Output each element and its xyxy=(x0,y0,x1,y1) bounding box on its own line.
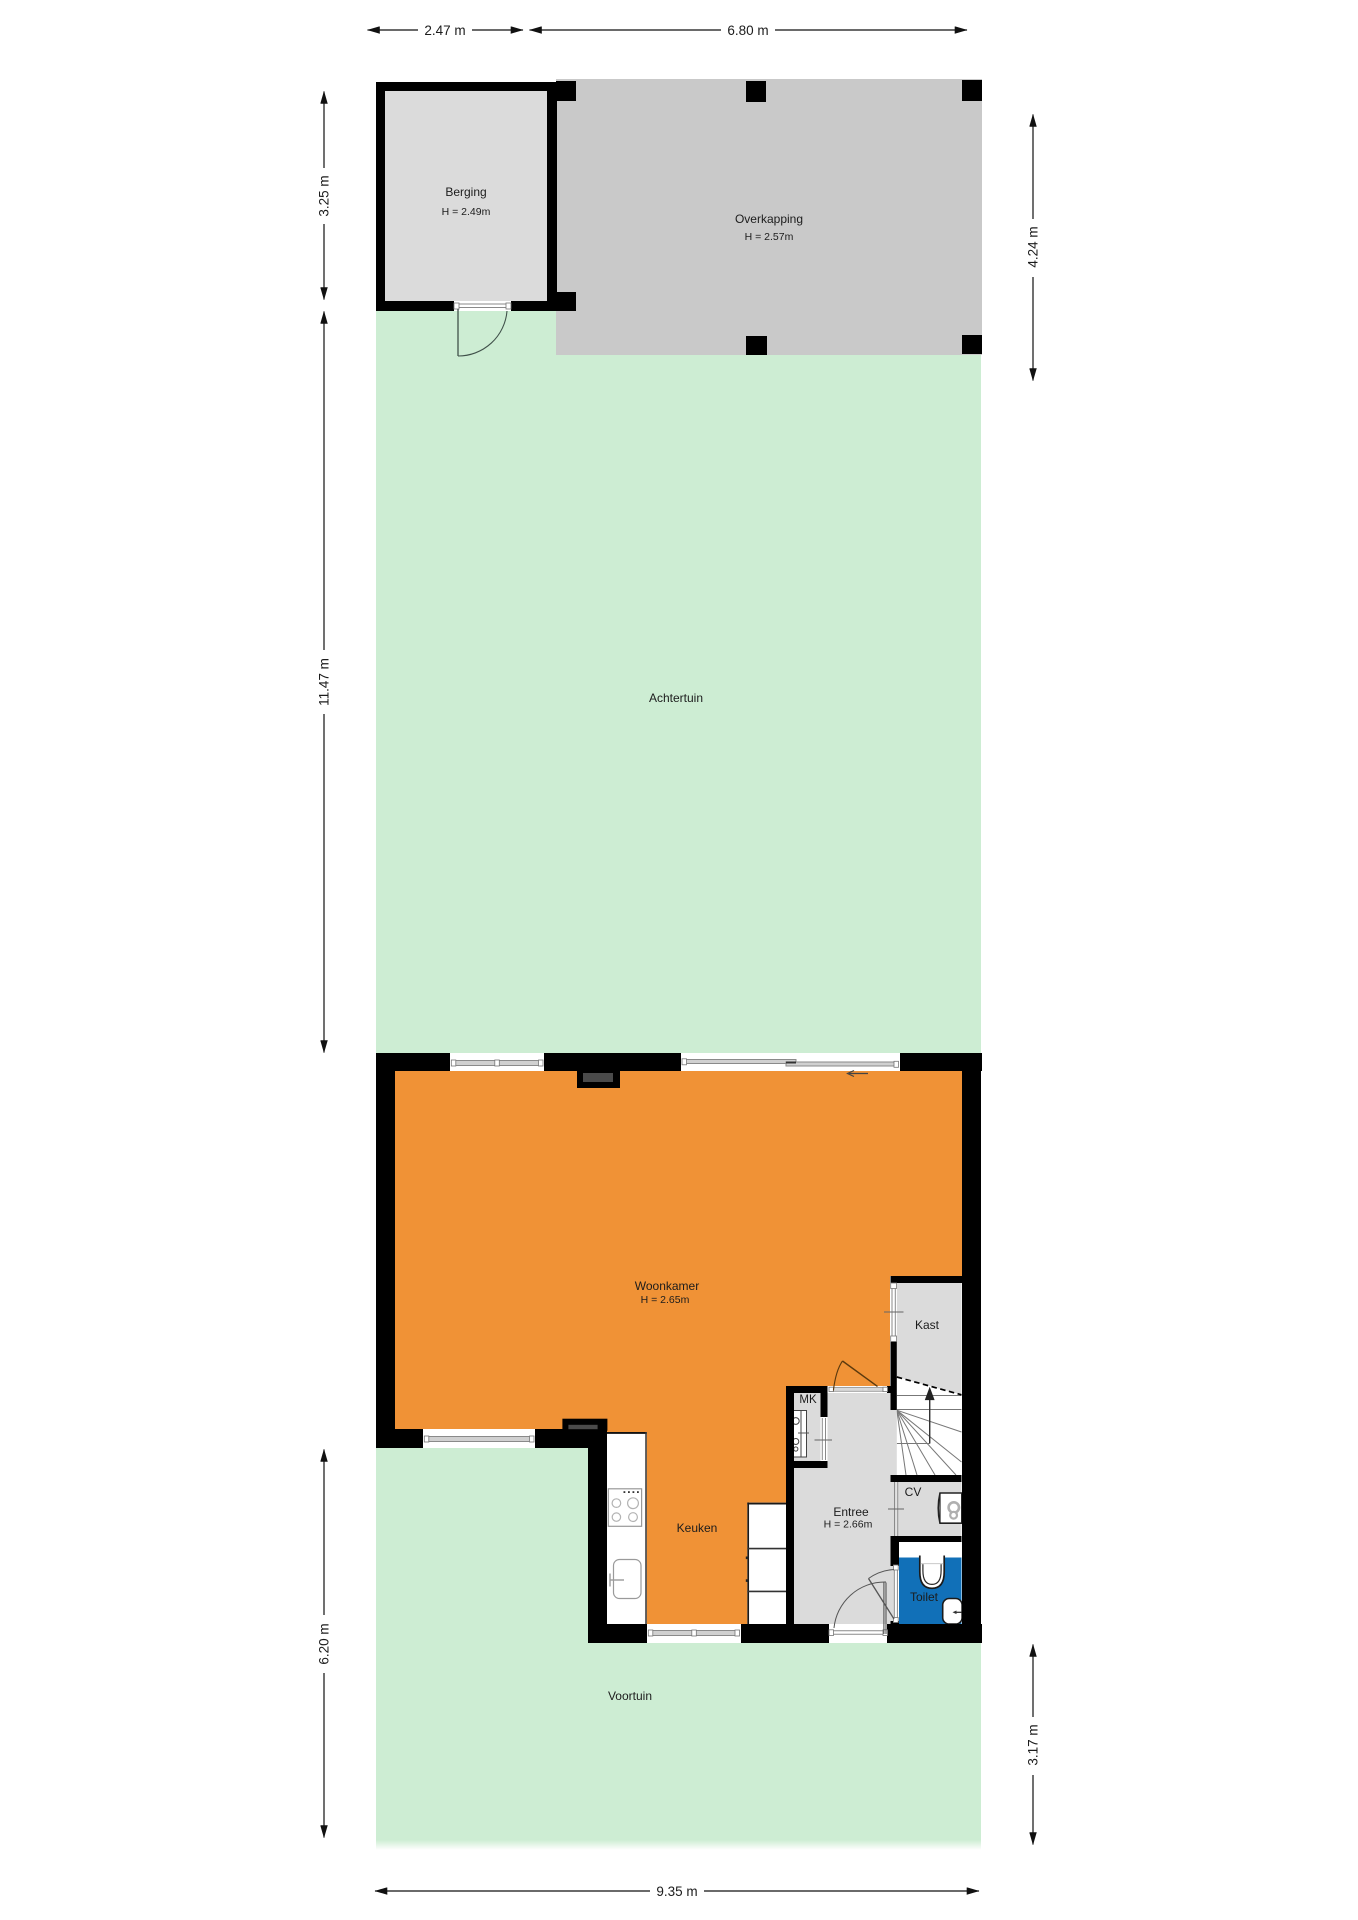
svg-text:H = 2.57m: H = 2.57m xyxy=(745,231,794,243)
svg-text:9.35 m: 9.35 m xyxy=(656,1884,697,1899)
svg-text:Woonkamer: Woonkamer xyxy=(635,1279,699,1293)
svg-text:Overkapping: Overkapping xyxy=(735,212,803,226)
svg-text:H = 2.66m: H = 2.66m xyxy=(824,1519,873,1531)
svg-text:11.47 m: 11.47 m xyxy=(317,658,332,706)
svg-text:Keuken: Keuken xyxy=(677,1521,718,1535)
svg-text:H = 2.65m: H = 2.65m xyxy=(641,1294,690,1306)
svg-text:CV: CV xyxy=(905,1485,922,1499)
svg-text:H = 2.49m: H = 2.49m xyxy=(442,206,491,218)
svg-text:6.20 m: 6.20 m xyxy=(317,1623,332,1664)
svg-text:Berging: Berging xyxy=(445,185,486,199)
svg-text:6.80 m: 6.80 m xyxy=(727,23,768,38)
svg-text:3.25 m: 3.25 m xyxy=(317,175,332,216)
svg-text:4.24 m: 4.24 m xyxy=(1026,226,1041,267)
svg-text:Voortuin: Voortuin xyxy=(608,1689,652,1703)
svg-text:Toilet: Toilet xyxy=(910,1590,939,1604)
svg-text:2.47 m: 2.47 m xyxy=(424,23,465,38)
svg-text:MK: MK xyxy=(799,1394,817,1406)
svg-text:3.17 m: 3.17 m xyxy=(1026,1724,1041,1765)
svg-text:Entree: Entree xyxy=(833,1505,869,1519)
svg-text:Kast: Kast xyxy=(915,1318,940,1332)
svg-text:Achtertuin: Achtertuin xyxy=(649,691,703,705)
